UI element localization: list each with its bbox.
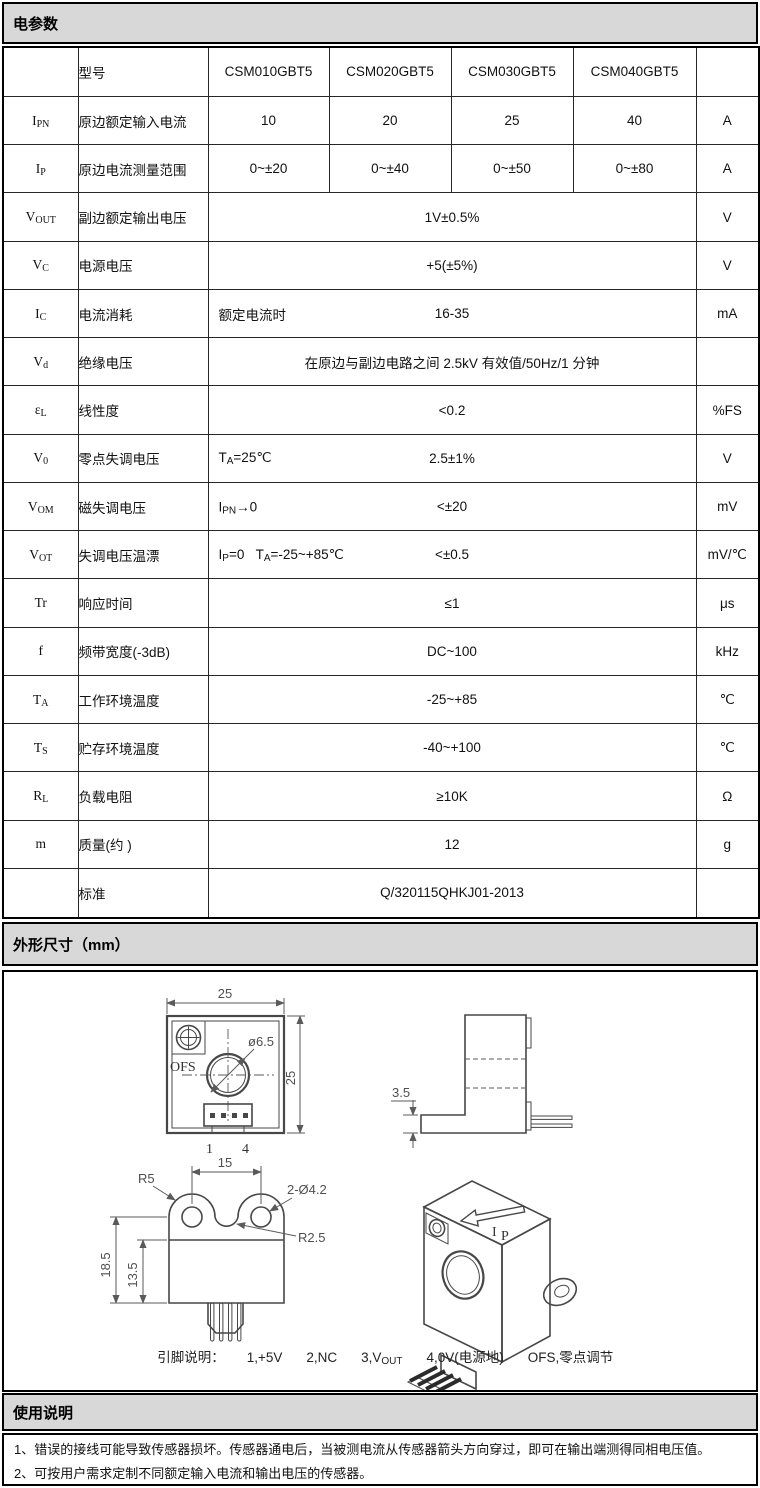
value-text: 1V±0.5% xyxy=(425,210,480,225)
table-row: IC电流消耗额定电流时16-35mA xyxy=(3,289,759,337)
symbol-cell: IC xyxy=(3,289,78,337)
parameter-cell: 绝缘电压 xyxy=(78,338,208,386)
value-text: 16-35 xyxy=(435,306,470,321)
table-row: f频带宽度(-3dB)DC~100kHz xyxy=(3,627,759,675)
section-header-dimensions: 外形尺寸（mm） xyxy=(2,922,758,966)
symbol-cell: f xyxy=(3,627,78,675)
symbol-cell: VOT xyxy=(3,531,78,579)
table-row: IPN原边额定输入电流10202540A xyxy=(3,96,759,144)
header-symbol-cell xyxy=(3,47,78,96)
value-text: ≤1 xyxy=(445,596,460,611)
symbol-cell: VC xyxy=(3,241,78,289)
merged-value-cell: 额定电流时16-35 xyxy=(208,289,696,337)
pin-description-item: 4,0V(电源地) xyxy=(427,1350,504,1365)
value-text: 2.5±1% xyxy=(429,451,475,466)
header-unit-cell xyxy=(696,47,759,96)
usage-note-line: 1、错误的接线可能导致传感器损坏。传感器通电后，当被测电流从传感器箭头方向穿过，… xyxy=(14,1438,746,1462)
merged-value-cell: Q/320115QHKJ01-2013 xyxy=(208,868,696,918)
unit-cell xyxy=(696,338,759,386)
parameter-cell: 贮存环境温度 xyxy=(78,724,208,772)
unit-cell: μs xyxy=(696,579,759,627)
pin-description: 引脚说明：1,+5V2,NC3,VOUT4,0V(电源地)OFS,零点调节 xyxy=(4,1331,756,1381)
parameter-cell: 失调电压温漂 xyxy=(78,531,208,579)
value-text: 在原边与副边电路之间 2.5kV 有效值/50Hz/1 分钟 xyxy=(305,356,600,371)
model-name: CSM030GBT5 xyxy=(451,47,573,96)
unit-cell: A xyxy=(696,96,759,144)
holes-diameter-label: 2-Ø4.2 xyxy=(287,1182,327,1197)
symbol-cell: IPN xyxy=(3,96,78,144)
value-text: <±0.5 xyxy=(435,547,469,562)
datasheet-page: 电参数 型号 CSM010GBT5 CSM020GBT5 CSM030GBT5 … xyxy=(0,0,760,1488)
merged-value-cell: ≤1 xyxy=(208,579,696,627)
value-text: ≥10K xyxy=(436,789,467,804)
unit-cell: mV xyxy=(696,482,759,530)
table-row: VOUT副边额定输出电压1V±0.5%V xyxy=(3,193,759,241)
parameter-cell: 标准 xyxy=(78,868,208,918)
symbol-cell: TS xyxy=(3,724,78,772)
merged-value-cell: TA=25℃2.5±1% xyxy=(208,434,696,482)
pin-description-items: 1,+5V2,NC3,VOUT4,0V(电源地)OFS,零点调节 xyxy=(235,1350,626,1365)
merged-value-cell: <0.2 xyxy=(208,386,696,434)
mounting-hole xyxy=(251,1207,271,1227)
parameter-cell: 副边额定输出电压 xyxy=(78,193,208,241)
pin-description-item: 3,VOUT xyxy=(361,1350,402,1365)
symbol-cell: RL xyxy=(3,772,78,820)
symbol-cell: εL xyxy=(3,386,78,434)
model-name: CSM010GBT5 xyxy=(208,47,329,96)
symbol-cell: IP xyxy=(3,145,78,193)
parameter-cell: 磁失调电压 xyxy=(78,482,208,530)
unit-cell: ℃ xyxy=(696,675,759,723)
parameter-cell: 电流消耗 xyxy=(78,289,208,337)
merged-value-cell: -40~+100 xyxy=(208,724,696,772)
merged-value-cell: DC~100 xyxy=(208,627,696,675)
side-view-drawing: 3.5 xyxy=(391,1015,572,1148)
table-row: IP原边电流测量范围0~±200~±400~±500~±80A xyxy=(3,145,759,193)
model-name: CSM020GBT5 xyxy=(329,47,451,96)
unit-cell: mA xyxy=(696,289,759,337)
value-cell: 20 xyxy=(329,96,451,144)
value-cell: 0~±40 xyxy=(329,145,451,193)
symbol-cell: Tr xyxy=(3,579,78,627)
value-cell: 10 xyxy=(208,96,329,144)
condition-text: TA=25℃ xyxy=(219,450,272,466)
model-name: CSM040GBT5 xyxy=(573,47,696,96)
dimension-drawings: OFS ø6.5 25 xyxy=(4,972,756,1390)
table-row: V0零点失调电压TA=25℃2.5±1%V xyxy=(3,434,759,482)
ofs-label: OFS xyxy=(170,1060,196,1075)
value-text: <0.2 xyxy=(439,403,466,418)
symbol-cell: Vd xyxy=(3,338,78,386)
pin-4-label: 4 xyxy=(242,1142,249,1157)
table-row: RL负载电阻≥10KΩ xyxy=(3,772,759,820)
table-row: VOM磁失调电压IPN→0<±20mV xyxy=(3,482,759,530)
symbol-cell: VOUT xyxy=(3,193,78,241)
parameter-cell: 零点失调电压 xyxy=(78,434,208,482)
parameter-cell: 原边电流测量范围 xyxy=(78,145,208,193)
symbol-cell xyxy=(3,868,78,918)
table-row: m质量(约 )12g xyxy=(3,820,759,868)
condition-text: 额定电流时 xyxy=(219,304,287,324)
model-label: 型号 xyxy=(78,47,208,96)
dimension-drawings-panel: OFS ø6.5 25 xyxy=(2,970,758,1392)
pin-1-label: 1 xyxy=(206,1142,213,1157)
parameter-cell: 频带宽度(-3dB) xyxy=(78,627,208,675)
pin-description-label: 引脚说明： xyxy=(157,1350,225,1365)
pin-description-item: 1,+5V xyxy=(247,1350,283,1365)
table-row: 标准Q/320115QHKJ01-2013 xyxy=(3,868,759,918)
section-title: 使用说明 xyxy=(13,1402,73,1423)
bottom-view-drawing: 15 R5 2-Ø4.2 R2.5 18.5 13.5 xyxy=(98,1155,327,1341)
value-cell: 0~±80 xyxy=(573,145,696,193)
unit-cell: kHz xyxy=(696,627,759,675)
lobe-radius-label: R5 xyxy=(138,1171,155,1186)
unit-cell: %FS xyxy=(696,386,759,434)
value-text: Q/320115QHKJ01-2013 xyxy=(380,885,524,900)
table-row: Tr响应时间≤1μs xyxy=(3,579,759,627)
value-text: +5(±5%) xyxy=(426,258,477,273)
current-label: I xyxy=(492,1225,497,1240)
value-cell: 25 xyxy=(451,96,573,144)
current-direction-arrow xyxy=(461,1206,525,1226)
condition-text: IP=0 TA=-25~+85℃ xyxy=(219,547,344,563)
merged-value-cell: ≥10K xyxy=(208,772,696,820)
usage-note-line: 2、可按用户需求定制不同额定输入电流和输出电压的传感器。 xyxy=(14,1462,746,1486)
table-row: VOT失调电压温漂IP=0 TA=-25~+85℃<±0.5mV/℃ xyxy=(3,531,759,579)
value-text: -25~+85 xyxy=(427,692,477,707)
parameter-cell: 电源电压 xyxy=(78,241,208,289)
symbol-cell: m xyxy=(3,820,78,868)
unit-cell: mV/℃ xyxy=(696,531,759,579)
symbol-cell: V0 xyxy=(3,434,78,482)
body-height-dim: 13.5 xyxy=(125,1262,140,1287)
parameter-cell: 线性度 xyxy=(78,386,208,434)
unit-cell: A xyxy=(696,145,759,193)
spec-table: 型号 CSM010GBT5 CSM020GBT5 CSM030GBT5 CSM0… xyxy=(2,46,760,919)
side-offset-dim: 3.5 xyxy=(392,1085,410,1100)
table-row: Vd绝缘电压在原边与副边电路之间 2.5kV 有效值/50Hz/1 分钟 xyxy=(3,338,759,386)
parameter-cell: 工作环境温度 xyxy=(78,675,208,723)
merged-value-cell: IPN→0<±20 xyxy=(208,482,696,530)
outer-height-dim: 18.5 xyxy=(98,1252,113,1277)
hole-pitch-dim: 15 xyxy=(218,1155,232,1170)
section-header-usage: 使用说明 xyxy=(2,1393,758,1431)
usage-notes-panel: 1、错误的接线可能导致传感器损坏。传感器通电后，当被测电流从传感器箭头方向穿过，… xyxy=(2,1433,758,1486)
front-height-dim: 25 xyxy=(283,1071,298,1085)
spec-table-body: 型号 CSM010GBT5 CSM020GBT5 CSM030GBT5 CSM0… xyxy=(3,47,759,918)
value-cell: 0~±50 xyxy=(451,145,573,193)
mounting-hole xyxy=(182,1207,202,1227)
merged-value-cell: 在原边与副边电路之间 2.5kV 有效值/50Hz/1 分钟 xyxy=(208,338,696,386)
table-header-row: 型号 CSM010GBT5 CSM020GBT5 CSM030GBT5 CSM0… xyxy=(3,47,759,96)
value-text: DC~100 xyxy=(427,644,477,659)
unit-cell: ℃ xyxy=(696,724,759,772)
value-text: -40~+100 xyxy=(423,740,481,755)
merged-value-cell: -25~+85 xyxy=(208,675,696,723)
table-row: TA工作环境温度-25~+85℃ xyxy=(3,675,759,723)
pin-description-item: 2,NC xyxy=(306,1350,337,1365)
unit-cell: V xyxy=(696,193,759,241)
hole-diameter-label: ø6.5 xyxy=(248,1034,274,1049)
front-view-drawing: OFS ø6.5 25 xyxy=(167,986,305,1157)
notch-radius-label: R2.5 xyxy=(298,1230,325,1245)
parameter-cell: 质量(约 ) xyxy=(78,820,208,868)
merged-value-cell: 1V±0.5% xyxy=(208,193,696,241)
parameter-cell: 负载电阻 xyxy=(78,772,208,820)
symbol-cell: TA xyxy=(3,675,78,723)
merged-value-cell: IP=0 TA=-25~+85℃<±0.5 xyxy=(208,531,696,579)
unit-cell: V xyxy=(696,241,759,289)
unit-cell: g xyxy=(696,820,759,868)
section-title: 外形尺寸（mm） xyxy=(13,934,130,955)
symbol-cell: VOM xyxy=(3,482,78,530)
table-row: εL线性度<0.2%FS xyxy=(3,386,759,434)
value-cell: 40 xyxy=(573,96,696,144)
section-header-electrical: 电参数 xyxy=(2,2,758,44)
parameter-cell: 响应时间 xyxy=(78,579,208,627)
unit-cell: Ω xyxy=(696,772,759,820)
merged-value-cell: 12 xyxy=(208,820,696,868)
table-row: VC电源电压+5(±5%)V xyxy=(3,241,759,289)
value-text: <±20 xyxy=(437,499,467,514)
current-label-sub: P xyxy=(501,1229,509,1244)
table-row: TS贮存环境温度-40~+100℃ xyxy=(3,724,759,772)
unit-cell: V xyxy=(696,434,759,482)
parameter-cell: 原边额定输入电流 xyxy=(78,96,208,144)
front-width-dim: 25 xyxy=(218,986,232,1001)
pin-description-item: OFS,零点调节 xyxy=(528,1350,614,1365)
value-text: 12 xyxy=(444,837,459,852)
unit-cell xyxy=(696,868,759,918)
merged-value-cell: +5(±5%) xyxy=(208,241,696,289)
section-title: 电参数 xyxy=(13,13,58,34)
value-cell: 0~±20 xyxy=(208,145,329,193)
condition-text: IPN→0 xyxy=(219,499,258,514)
